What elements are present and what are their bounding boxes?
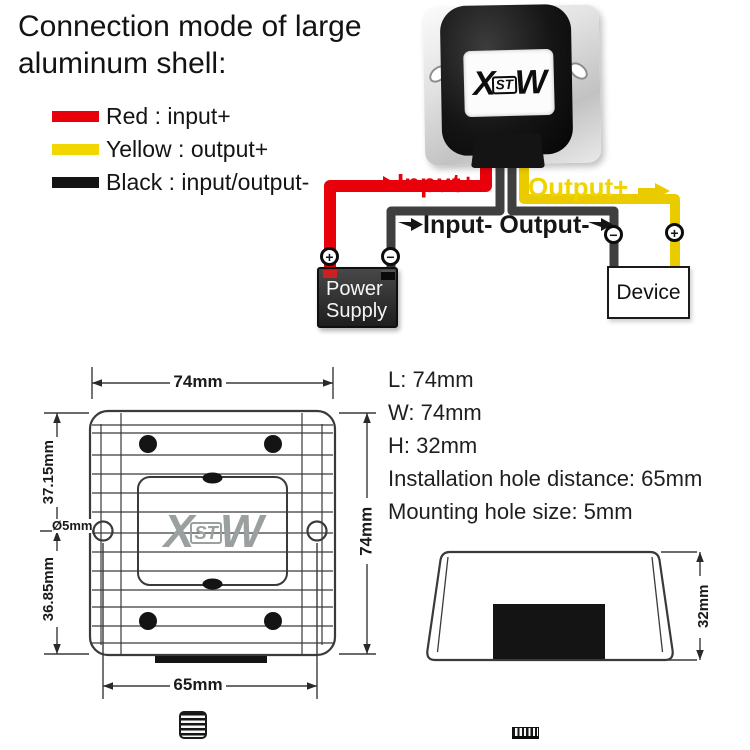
ps-negative-tab (381, 270, 395, 280)
diagram-canvas (0, 0, 750, 750)
top-view-label-logo: X ST W (138, 477, 287, 585)
device-box: Device (607, 266, 690, 319)
device-positive-terminal: + (665, 223, 684, 242)
logo-w: W (220, 508, 261, 554)
top-view-width-dim: 74mm (170, 373, 226, 392)
lower-section-dim: 36.85mm (41, 557, 58, 621)
xsw-logo: X ST W (472, 65, 545, 101)
logo-st-badge: ST (190, 522, 222, 544)
xsw-logo: X ST W (164, 508, 262, 554)
power-supply-text-2: Supply (326, 300, 396, 322)
minus-symbol: − (609, 228, 617, 242)
device-text: Device (616, 281, 680, 305)
mounting-hole-right (308, 522, 327, 541)
product-diagram-page: Connection mode of large aluminum shell:… (0, 0, 750, 750)
upper-section-dim: 37.15mm (41, 440, 58, 504)
converter-wire-connector (471, 134, 545, 168)
input-output-minus-label: Input- Output- (423, 211, 590, 240)
device-negative-terminal: − (604, 225, 623, 244)
power-supply-text-1: Power (326, 278, 396, 300)
connector-bar (155, 656, 267, 663)
hole-distance-dim: 65mm (170, 676, 226, 695)
minus-symbol: − (386, 250, 394, 264)
power-supply-positive-terminal: + (320, 247, 339, 266)
logo-w: W (515, 65, 546, 100)
logo-x: X (164, 508, 193, 554)
screw-dot (139, 435, 157, 453)
power-supply-box: Power Supply (317, 267, 398, 328)
input-plus-label: Input+ (397, 168, 476, 199)
side-view-base-block (493, 604, 605, 659)
converter-brand-label: X ST W (463, 49, 555, 117)
mounting-hole-left (94, 522, 113, 541)
screw-dot (139, 612, 157, 630)
side-view-height-dim: 32mm (696, 578, 713, 634)
screw-dot (264, 435, 282, 453)
power-supply-negative-terminal: − (381, 247, 400, 266)
side-view-drawing (427, 552, 704, 660)
output-plus-label: Output+ (528, 172, 628, 203)
logo-st-badge: ST (491, 76, 517, 94)
top-view-height-dim: 74mm (358, 501, 377, 561)
plus-symbol: + (670, 226, 678, 240)
hole-diameter-dim: Ø5mm (52, 519, 92, 533)
ps-positive-tab (323, 270, 337, 278)
plus-symbol: + (325, 250, 333, 264)
screw-dot (264, 612, 282, 630)
input-minus-arrow-icon (398, 218, 423, 231)
